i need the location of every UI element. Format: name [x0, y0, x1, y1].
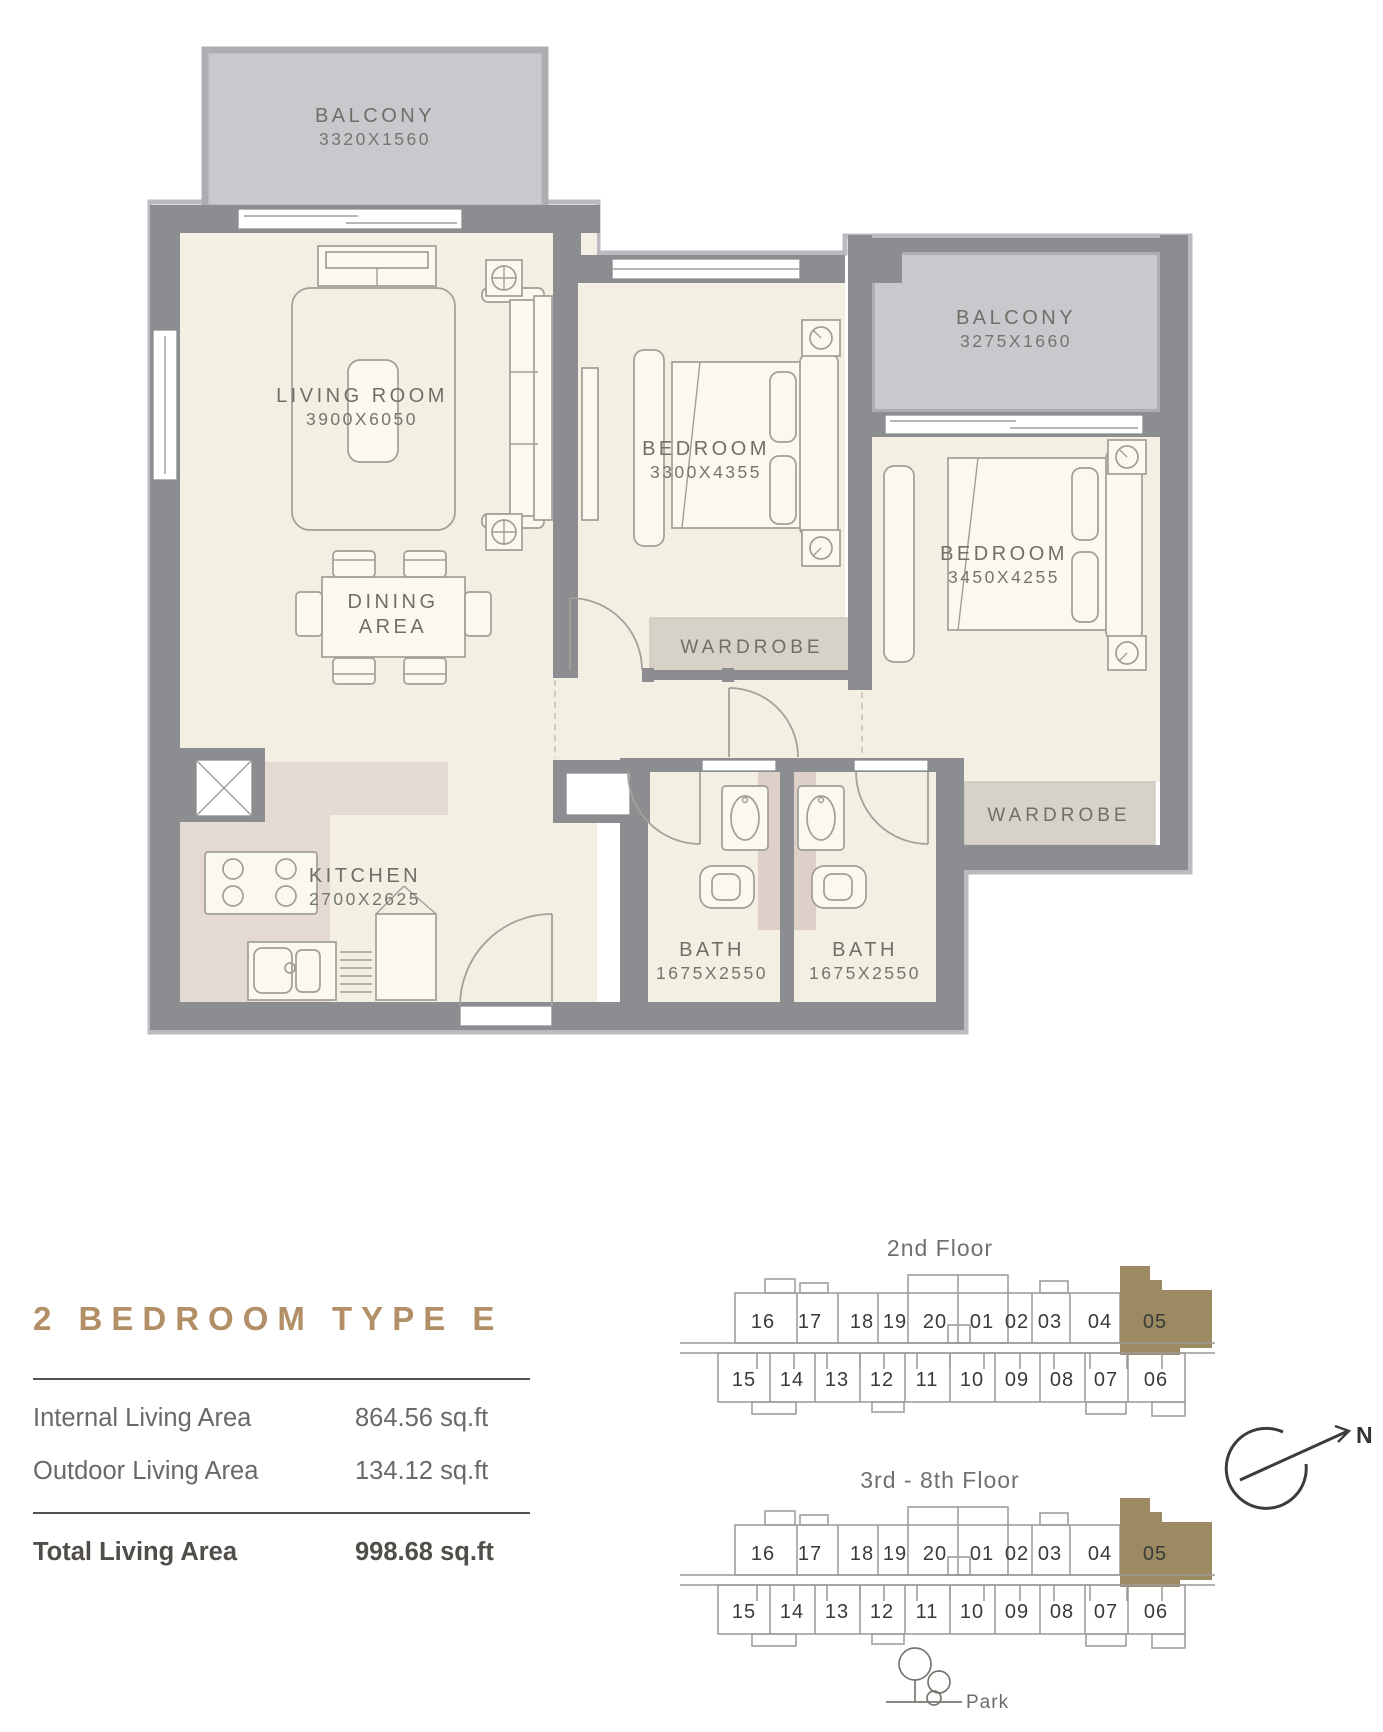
bath-2-label: BATH — [832, 939, 898, 961]
svg-text:1675X2550: 1675X2550 — [809, 963, 921, 983]
dresser — [582, 368, 598, 520]
svg-text:12: 12 — [870, 1369, 894, 1391]
stove — [205, 852, 317, 914]
north-compass-icon — [1226, 1426, 1349, 1508]
svg-text:17: 17 — [798, 1311, 822, 1333]
area-row-total: Total Living Area 998.68 sq.ft — [33, 1514, 530, 1567]
kitchen-counter-top — [265, 762, 448, 815]
svg-text:03: 03 — [1038, 1311, 1062, 1333]
bath-1-opening — [702, 760, 776, 771]
bed-headboard — [800, 354, 838, 536]
ceiling-speaker-icon — [486, 514, 522, 550]
svg-text:02: 02 — [1005, 1311, 1029, 1333]
area-row-outdoor: Outdoor Living Area 134.12 sq.ft — [33, 1433, 530, 1486]
svg-text:3450X4255: 3450X4255 — [948, 567, 1060, 587]
svg-text:04: 04 — [1088, 1311, 1112, 1333]
svg-text:06: 06 — [1144, 1369, 1168, 1391]
svg-text:09: 09 — [1005, 1369, 1029, 1391]
living-room-label: LIVING ROOM — [276, 385, 448, 407]
bedroom-2-label: BEDROOM — [940, 543, 1068, 565]
svg-text:3300X4355: 3300X4355 — [650, 462, 762, 482]
unit-numbers-top: 16 17 18 19 20 01 02 03 04 05 — [751, 1311, 1167, 1333]
svg-text:3900X6050: 3900X6050 — [306, 409, 418, 429]
bedroom-2-slider — [885, 415, 1143, 434]
area-value: 134.12 sq.ft — [355, 1457, 488, 1486]
balcony-top-label: BALCONY — [315, 105, 435, 127]
svg-text:16: 16 — [751, 1311, 775, 1333]
info-panel: 2 BEDROOM TYPE E Internal Living Area 86… — [33, 1300, 533, 1567]
svg-text:01: 01 — [970, 1311, 994, 1333]
svg-text:10: 10 — [960, 1369, 984, 1391]
area-label: Outdoor Living Area — [33, 1457, 355, 1486]
bath-2-toilet — [812, 866, 866, 908]
pillow — [1072, 468, 1098, 540]
wardrobe-2-label: WARDROBE — [987, 805, 1130, 826]
svg-text:13: 13 — [825, 1369, 849, 1391]
total-value: 998.68 sq.ft — [355, 1538, 494, 1567]
balcony-right-label: BALCONY — [956, 307, 1076, 329]
entry-opening — [460, 1006, 552, 1026]
svg-text:11: 11 — [916, 1369, 939, 1391]
diagram-1-label: 2nd Floor — [887, 1235, 993, 1261]
svg-text:18: 18 — [850, 1311, 874, 1333]
svg-text:19: 19 — [883, 1311, 907, 1333]
building-key-plan: 16 17 18 19 20 01 02 03 04 05 15 14 13 1… — [680, 1266, 1215, 1416]
svg-text:05: 05 — [1143, 1311, 1167, 1333]
svg-text:AREA: AREA — [359, 616, 427, 638]
ceiling-speaker-icon — [486, 260, 522, 296]
svg-text:3275X1660: 3275X1660 — [960, 331, 1072, 351]
area-label: Internal Living Area — [33, 1404, 355, 1433]
svg-text:20: 20 — [923, 1311, 947, 1333]
bath-2-opening — [854, 760, 928, 771]
bed-headboard — [1106, 450, 1142, 640]
svg-text:1675X2550: 1675X2550 — [656, 963, 768, 983]
pillow — [770, 372, 796, 442]
building-key-plan-lower — [680, 1498, 1215, 1648]
park-label: Park — [966, 1692, 1009, 1713]
floor-plan-page: BALCONY 3320X1560 LIVING ROOM 3900X6050 … — [0, 0, 1383, 1732]
pillow — [1072, 552, 1098, 622]
bath-1-label: BATH — [679, 939, 745, 961]
kitchen-sink — [248, 942, 336, 1000]
diagram-2-label: 3rd - 8th Floor — [860, 1467, 1019, 1493]
north-label: N — [1356, 1422, 1373, 1448]
svg-text:14: 14 — [780, 1369, 804, 1391]
plan-title: 2 BEDROOM TYPE E — [33, 1300, 533, 1338]
svg-text:08: 08 — [1050, 1369, 1074, 1391]
svg-text:07: 07 — [1094, 1369, 1118, 1391]
total-label: Total Living Area — [33, 1538, 355, 1567]
bath-1-toilet — [700, 866, 754, 908]
bench — [884, 466, 914, 662]
pillow — [770, 456, 796, 524]
area-row-internal: Internal Living Area 864.56 sq.ft — [33, 1380, 530, 1433]
kitchen-label: KITCHEN — [309, 865, 421, 887]
balcony-top-slider — [238, 209, 462, 229]
bedroom-1-label: BEDROOM — [642, 438, 770, 460]
area-value: 864.56 sq.ft — [355, 1404, 488, 1433]
svg-text:3320X1560: 3320X1560 — [319, 129, 431, 149]
svg-text:2700X2625: 2700X2625 — [309, 889, 421, 909]
door-ticks — [757, 1353, 1162, 1369]
dining-area-label: DINING — [348, 591, 439, 613]
park-icon — [886, 1648, 962, 1705]
svg-text:15: 15 — [732, 1369, 756, 1391]
wardrobe-1-label: WARDROBE — [680, 637, 823, 658]
